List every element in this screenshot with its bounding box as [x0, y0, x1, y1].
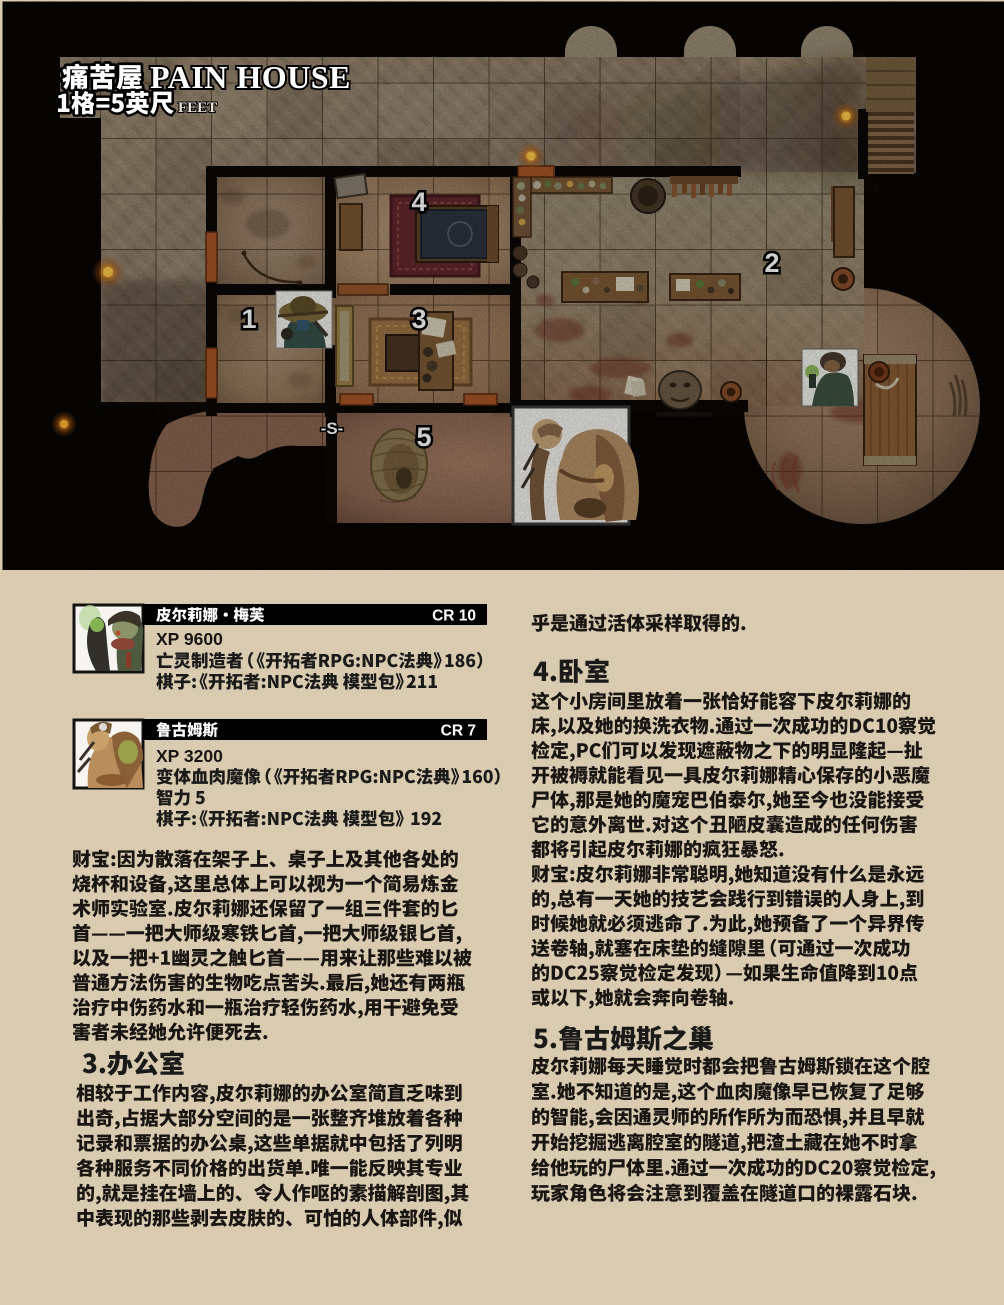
- svg-text:PAIN HOUSE: PAIN HOUSE: [150, 59, 351, 95]
- svg-text:XP 9600: XP 9600: [156, 629, 223, 649]
- svg-text:CR 7: CR 7: [441, 723, 476, 740]
- svg-text:XP 3200: XP 3200: [156, 746, 223, 766]
- svg-text:CR 10: CR 10: [432, 608, 476, 625]
- svg-text:FEET: FEET: [178, 100, 217, 116]
